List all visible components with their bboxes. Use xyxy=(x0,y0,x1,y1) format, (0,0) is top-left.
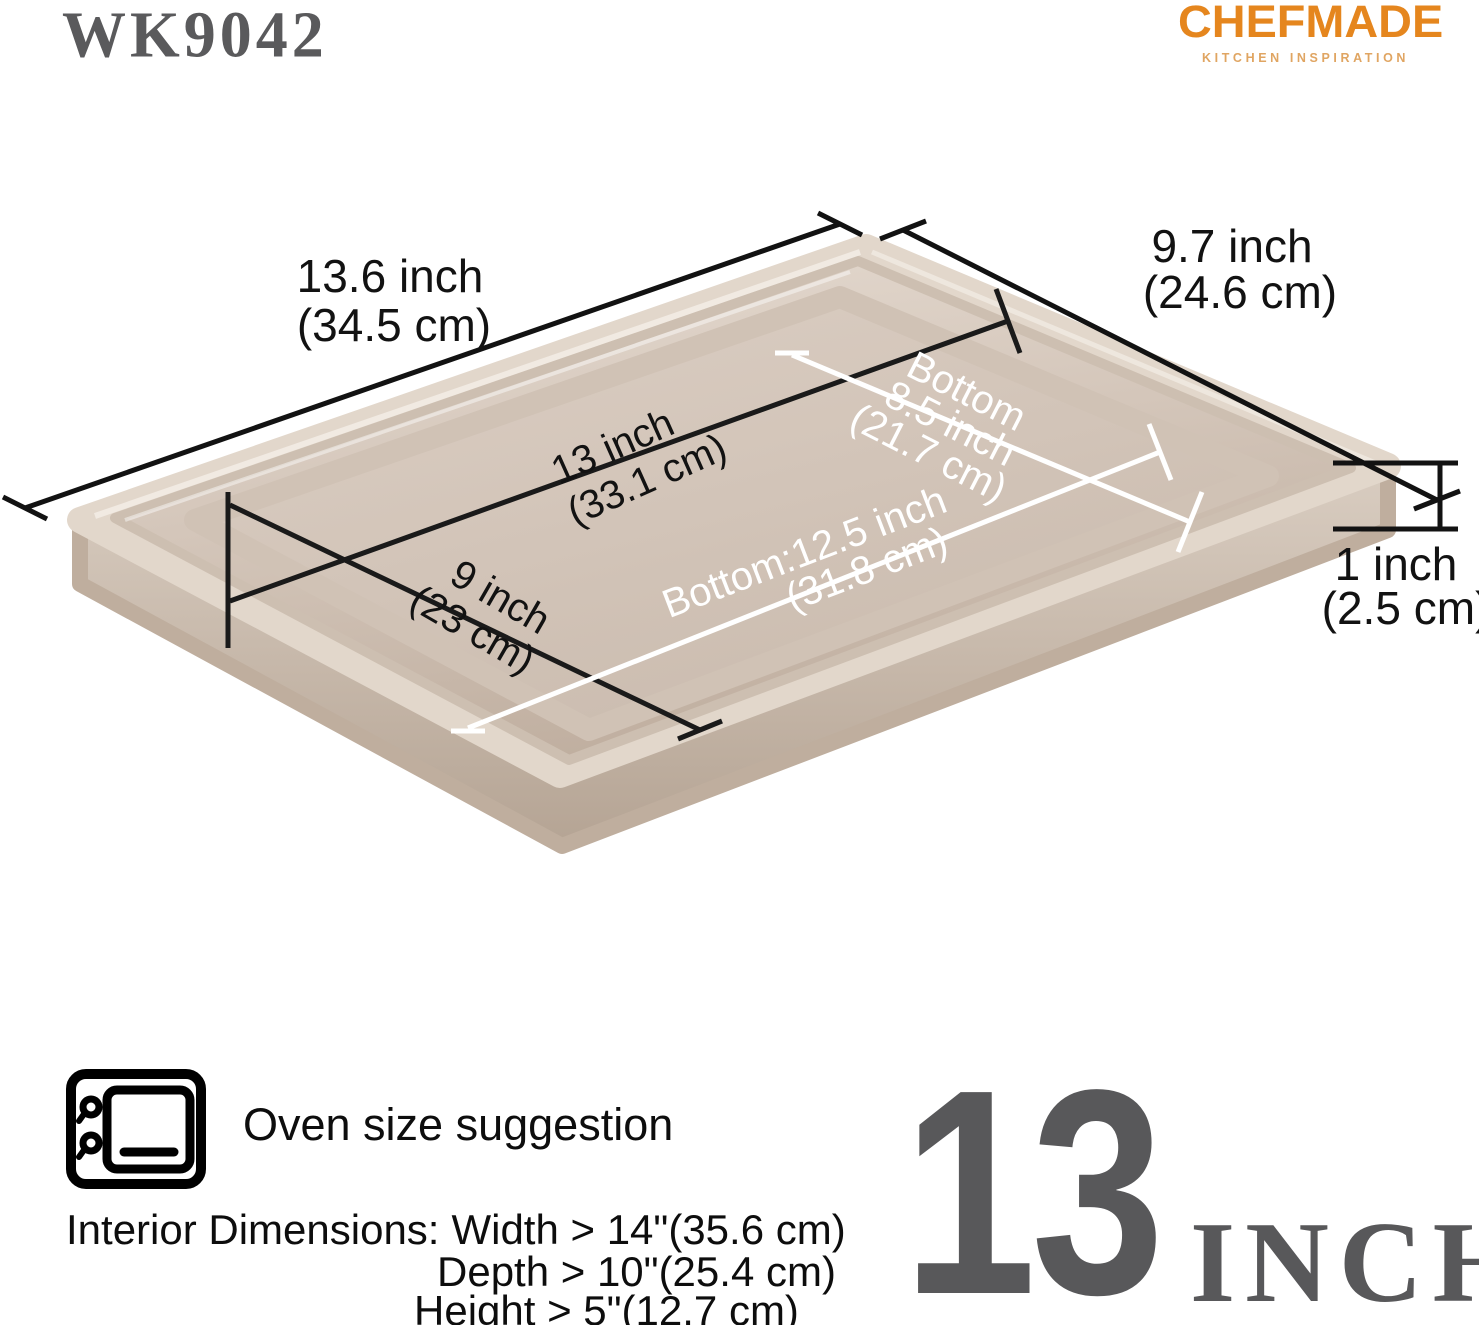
size-badge-unit: INCH xyxy=(1190,1205,1479,1321)
interior-height-spec: Height > 5"(12.7 cm) xyxy=(414,1287,799,1325)
size-badge-number: 13 xyxy=(903,1046,1159,1325)
label-top-length-inch: 13.6 inch xyxy=(297,250,484,302)
label-top-width-cm: (24.6 cm) xyxy=(1143,266,1337,318)
oven-icon xyxy=(71,1074,201,1184)
label-top-width-inch: 9.7 inch xyxy=(1151,220,1312,272)
brand-logo: CHEFMADE KITCHEN INSPIRATION xyxy=(1178,0,1433,65)
model-number: WK9042 xyxy=(62,0,328,73)
interior-width-spec: Width > 14"(35.6 cm) xyxy=(451,1206,845,1254)
brand-tagline: KITCHEN INSPIRATION xyxy=(1202,51,1433,65)
baking-pan-illustration xyxy=(80,247,1388,846)
oven-size-note: Oven size suggestion xyxy=(243,1099,673,1151)
interior-dimensions-row: Interior Dimensions: Width > 14"(35.6 cm… xyxy=(66,1206,846,1254)
brand-name: CHEFMADE xyxy=(1178,0,1443,48)
product-diagram: 13.6 inch (34.5 cm) 9.7 inch (24.6 cm) 1… xyxy=(0,0,1479,1325)
pan-diagram-canvas: 13.6 inch (34.5 cm) 9.7 inch (24.6 cm) 1… xyxy=(0,0,1479,1325)
label-height-cm: (2.5 cm) xyxy=(1322,582,1479,634)
label-top-length-cm: (34.5 cm) xyxy=(297,299,491,351)
interior-dimensions-label: Interior Dimensions: xyxy=(66,1206,439,1254)
